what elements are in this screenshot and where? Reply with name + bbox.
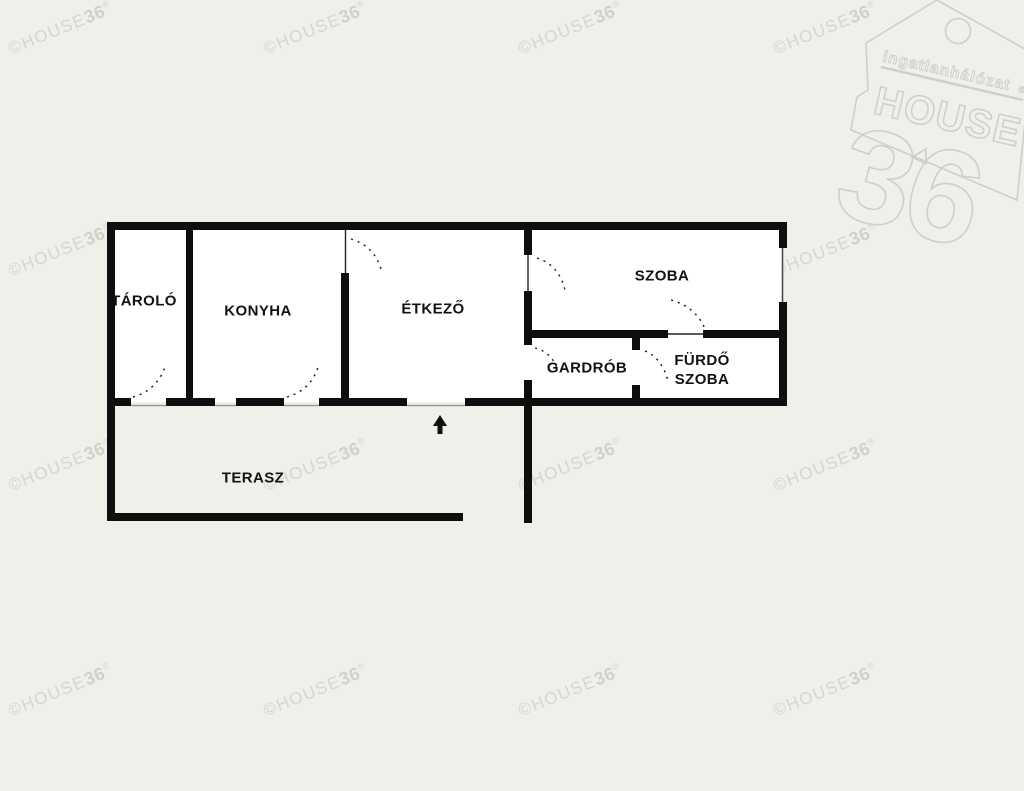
logo-tag-hole — [946, 19, 971, 44]
house36-logo: ingatlanhálózat ® HOUSE 36 — [0, 0, 1024, 791]
logo-outline-group: ingatlanhálózat ® HOUSE 36 — [823, 0, 1024, 275]
logo-reg-mark: ® — [1018, 84, 1024, 95]
floorplan-page: ©HOUSE36®©HOUSE36®©HOUSE36®©HOUSE36®©HOU… — [0, 0, 1024, 791]
